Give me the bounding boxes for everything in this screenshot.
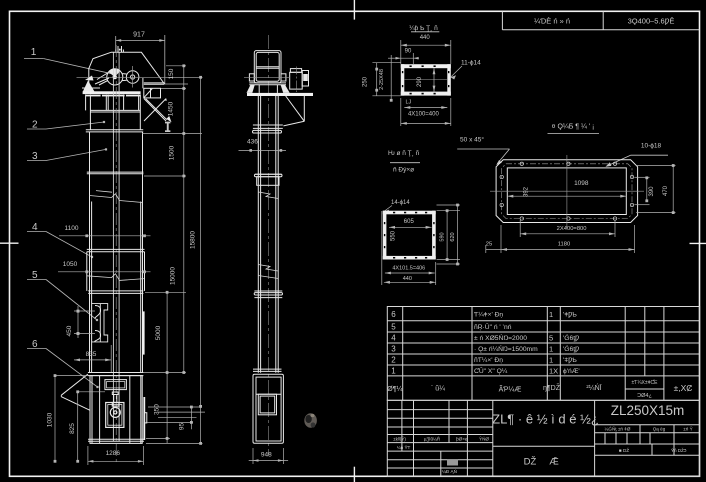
svg-text:3: 3	[391, 345, 396, 354]
svg-text:14-ϕ14: 14-ϕ14	[391, 200, 410, 206]
svg-text:605: 605	[404, 219, 415, 225]
svg-text:4X101.5=406: 4X101.5=406	[392, 265, 425, 271]
svg-text:Ƭ¼ǂ×' Ðņ: Ƭ¼ǂ×' Ðņ	[474, 312, 503, 319]
svg-text:Ø¶¼: Ø¶¼	[387, 386, 402, 393]
svg-text:'ǂǷƄ: 'ǂǷƄ	[563, 312, 577, 319]
svg-text:ƥØ×ø: ƥØ×ø	[456, 436, 468, 441]
svg-text:ZL¶ · ê ½ ì d é ½¿: ZL¶ · ê ½ ì d é ½¿	[492, 412, 599, 427]
svg-text:450: 450	[66, 325, 73, 336]
svg-text:2-25X48: 2-25X48	[379, 69, 385, 90]
svg-text:µƷǀŭ¼Ŕ: µƷǀŭ¼Ŕ	[424, 435, 441, 441]
svg-text:5000: 5000	[155, 325, 162, 340]
svg-text:±ķǁ(Ŷ): ±ķǁ(Ŷ)	[393, 435, 406, 441]
svg-text:4X100=400: 4X100=400	[408, 112, 440, 118]
svg-text:436: 436	[247, 139, 258, 146]
svg-text:392: 392	[524, 186, 530, 197]
svg-text:1: 1	[549, 356, 553, 365]
svg-text:1: 1	[31, 47, 37, 58]
svg-text:'Ǵ6ƫǷ: 'Ǵ6ƫǷ	[563, 333, 579, 342]
svg-text:2: 2	[391, 356, 396, 365]
svg-text:1450: 1450	[168, 101, 175, 116]
svg-text:95: 95	[179, 423, 186, 431]
svg-text:1286: 1286	[106, 450, 121, 457]
svg-text:²¼ŃĪ: ²¼ŃĪ	[586, 383, 601, 392]
svg-text:1: 1	[549, 345, 553, 354]
svg-text:620: 620	[450, 232, 456, 241]
svg-text:1180: 1180	[558, 242, 570, 248]
svg-text:´ ŭ¼: ´ ŭ¼	[431, 386, 445, 393]
svg-text:15000: 15000	[170, 267, 177, 285]
svg-text:ŶŃØ: ŶŃØ	[479, 435, 489, 441]
svg-text:±Ƭ¼X±ǂƇE: ±Ƭ¼X±ǂƇE	[632, 379, 659, 386]
svg-text:6: 6	[391, 310, 396, 319]
svg-text:1: 1	[391, 367, 396, 376]
svg-text:· Ǫ± ń¼ŃŊ=1500mm: · Ǫ± ń¼ŃŊ=1500mm	[474, 344, 538, 353]
svg-text:¼ń ŶƬ: ¼ń ŶƬ	[397, 444, 411, 450]
svg-text:ZL250X15m: ZL250X15m	[611, 403, 685, 418]
svg-text:ñ Đý×ø: ñ Đý×ø	[393, 167, 414, 174]
svg-text:± ń XØ5ŃŊ=2000: ± ń XØ5ŃŊ=2000	[474, 333, 527, 342]
svg-text:■ Ǆ: ■ Ǆ	[619, 446, 629, 453]
svg-text:ñŖ·Ŭ" ń ' ʼnń: ñŖ·Ŭ" ń ' ʼnń	[474, 322, 512, 331]
svg-text:Ǆ: Ǆ	[524, 456, 537, 468]
svg-text:¼ƥ Ƅ Ţ¸ ñ: ¼ƥ Ƅ Ţ¸ ñ	[409, 25, 438, 32]
svg-text:470: 470	[663, 185, 669, 196]
svg-text:'Ǵ6ƫǷ: 'Ǵ6ƫǷ	[563, 344, 579, 353]
svg-text:590: 590	[440, 232, 446, 241]
svg-text:15800: 15800	[190, 231, 197, 249]
svg-text:2X400=800: 2X400=800	[557, 226, 587, 232]
svg-text:ÃƤ¼Æ: ÃƤ¼Æ	[499, 385, 522, 394]
svg-text:Ǫą ēg: Ǫą ēg	[653, 426, 666, 431]
svg-text:390: 390	[649, 186, 655, 197]
svg-text:440: 440	[420, 35, 431, 41]
svg-text:440: 440	[403, 276, 412, 282]
svg-text:25: 25	[486, 242, 492, 248]
svg-text:Ǣ: Ǣ	[549, 457, 559, 468]
svg-text:1X: 1X	[549, 367, 558, 376]
svg-text:±,XȻ: ±,XȻ	[674, 383, 693, 393]
svg-text:1500: 1500	[169, 145, 176, 160]
svg-text:ϕ'ńÆ': ϕ'ńÆ'	[563, 368, 580, 375]
svg-text:LJ: LJ	[406, 100, 412, 106]
svg-text:1: 1	[549, 310, 553, 319]
svg-text:Ŷń ǄƼ: Ŷń ǄƼ	[671, 446, 687, 453]
svg-text:Ƕ ø ñ Ţ¸ ñ: Ƕ ø ñ Ţ¸ ñ	[388, 150, 420, 157]
svg-text:1098: 1098	[574, 180, 589, 187]
svg-text:4: 4	[391, 334, 396, 343]
svg-text:'ǂǷƄ: 'ǂǷƄ	[563, 357, 577, 364]
svg-text:10-ϕ18: 10-ϕ18	[641, 143, 662, 150]
svg-text:ƇŪ" X" Ǫ¼: ƇŪ" X" Ǫ¼	[474, 366, 508, 375]
svg-text:290: 290	[417, 76, 423, 87]
svg-text:90: 90	[405, 49, 412, 55]
svg-text:ñƬ¼×' Ðņ: ñƬ¼×' Ðņ	[474, 357, 503, 364]
svg-text:1050: 1050	[63, 261, 78, 268]
svg-text:1030: 1030	[47, 412, 54, 427]
svg-text:¼Ð ĄŃ: ¼Ð ĄŃ	[442, 468, 457, 474]
svg-text:3Ǫ400–5.6ǷĒ: 3Ǫ400–5.6ǷĒ	[628, 17, 675, 26]
svg-text:¼ƊÈ ń » ń: ¼ƊÈ ń » ń	[534, 17, 570, 26]
svg-text:948: 948	[261, 452, 272, 459]
svg-text:917: 917	[133, 31, 145, 38]
svg-text:ƆØ4¿: ƆØ4¿	[637, 393, 652, 399]
svg-text:550: 550	[391, 230, 397, 241]
svg-text:¤ Ǫ¼Ƃ ¶ ¼ ' ¡: ¤ Ǫ¼Ƃ ¶ ¼ ' ¡	[552, 124, 595, 131]
svg-text:835: 835	[86, 351, 97, 358]
svg-text:250: 250	[363, 76, 369, 87]
svg-text:1100: 1100	[65, 225, 79, 232]
svg-text:825: 825	[69, 423, 76, 434]
svg-text:150: 150	[168, 68, 175, 79]
svg-text:5: 5	[391, 323, 396, 332]
svg-text:50 x 45°: 50 x 45°	[460, 136, 484, 144]
svg-text:±ń Ŷ: ±ń Ŷ	[683, 425, 692, 431]
svg-text:350: 350	[154, 404, 161, 415]
svg-text:5: 5	[549, 334, 553, 343]
svg-text:11-ϕ14: 11-ϕ14	[461, 60, 481, 67]
svg-text:ŋ¶Ǆ: ŋ¶Ǆ	[543, 383, 561, 392]
svg-text:¼ĠÑƫ ±ń ǂØ: ¼ĠÑƫ ±ń ǂØ	[605, 425, 631, 431]
